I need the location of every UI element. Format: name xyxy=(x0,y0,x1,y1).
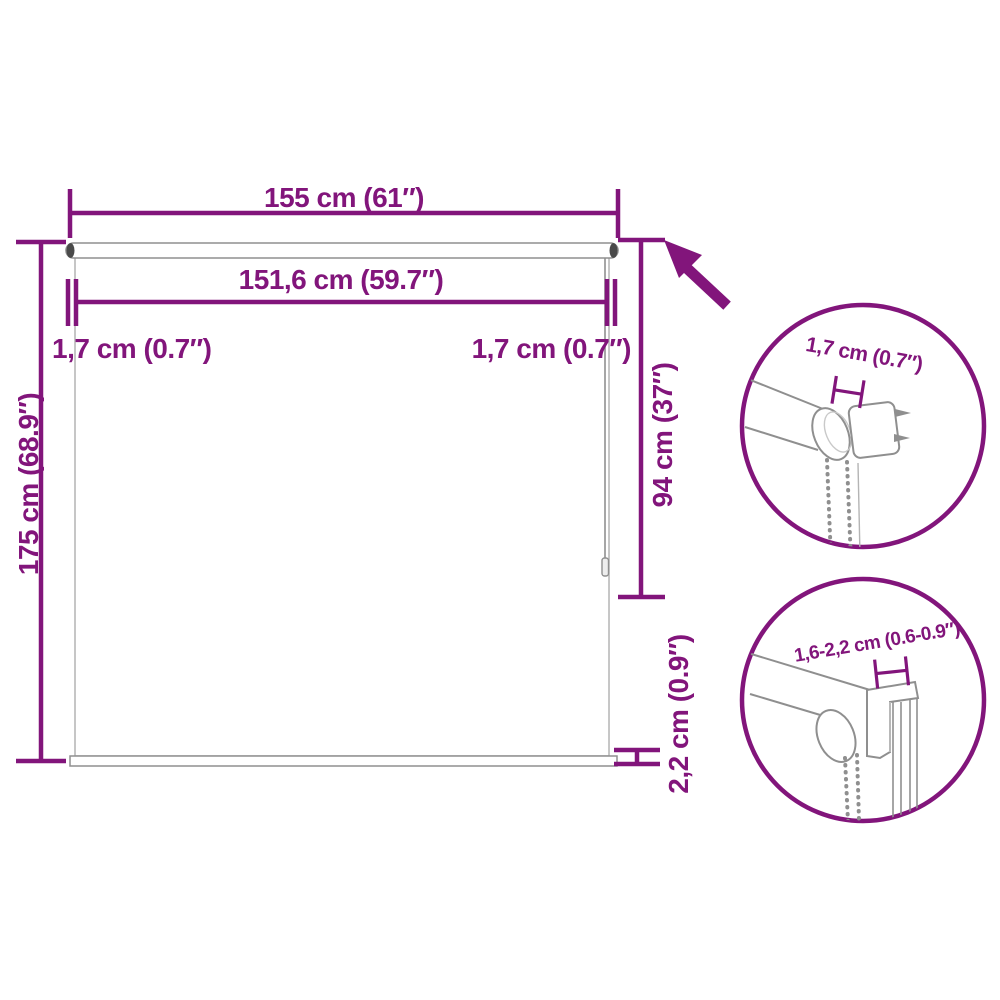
dim-bottom-bar xyxy=(614,750,660,764)
roller-blind-dimension-diagram: 155 cm (61″) 151,6 cm (59.7″) 1,7 cm (0.… xyxy=(0,0,1000,1000)
blind-drawing xyxy=(66,243,618,766)
detail-circle-bottom: 1,6-2,2 cm (0.6-0.9″) xyxy=(742,579,984,822)
zoom-callout-arrow-icon xyxy=(664,240,731,310)
roller-end-cap-right xyxy=(610,243,618,258)
side-offset-right-label: 1,7 cm (0.7″) xyxy=(472,333,631,364)
dimension-diagram-stage: 155 cm (61″) 151,6 cm (59.7″) 1,7 cm (0.… xyxy=(0,0,1000,1000)
fabric-width-label: 151,6 cm (59.7″) xyxy=(239,264,444,295)
detail-circle-top: 1,7 cm (0.7″) xyxy=(742,305,984,562)
detail-circle-bottom-border xyxy=(742,579,984,821)
total-width-label: 155 cm (61″) xyxy=(264,182,424,213)
bottom-bar-height-label: 2,2 cm (0.9″) xyxy=(663,634,694,793)
side-offset-left-label: 1,7 cm (0.7″) xyxy=(52,333,211,364)
roller-tube xyxy=(66,243,618,258)
roller-end-cap-left xyxy=(67,243,75,258)
blind-fabric-panel xyxy=(75,252,609,756)
chain-length-label: 94 cm (37″) xyxy=(647,363,678,508)
pull-chain-connector xyxy=(602,558,609,576)
bottom-bar xyxy=(70,756,617,766)
total-height-label: 175 cm (68.9″) xyxy=(13,393,44,575)
